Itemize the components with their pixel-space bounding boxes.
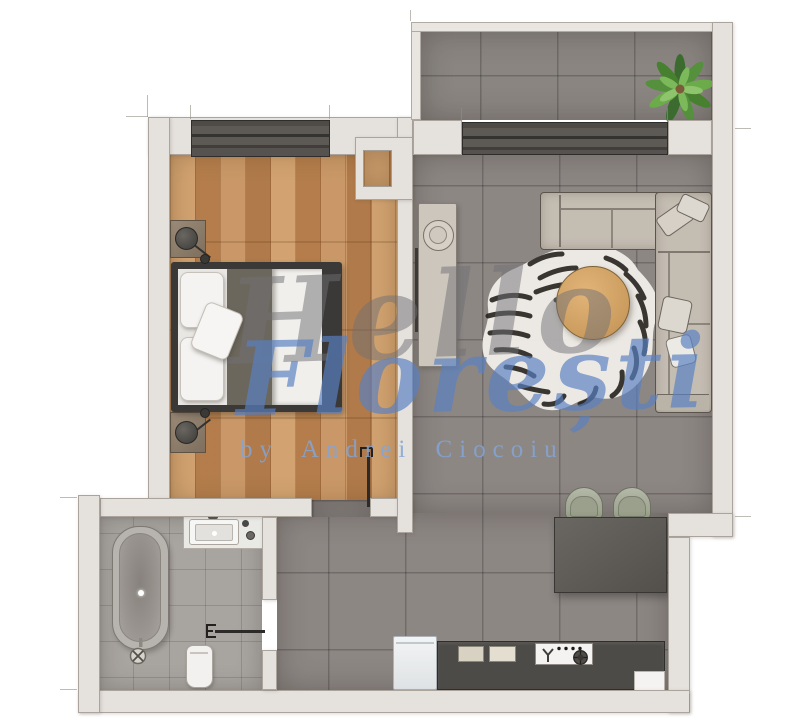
bathroom-door-leaf bbox=[215, 630, 265, 633]
wall-living-top-left bbox=[413, 120, 462, 155]
bedroom-door-handle bbox=[360, 447, 373, 457]
wall-right bbox=[712, 22, 733, 537]
drafting-tick bbox=[410, 10, 411, 21]
chair-seat bbox=[570, 496, 598, 517]
cabinet-circle bbox=[423, 220, 454, 251]
drafting-tick bbox=[689, 694, 690, 712]
chair-seat bbox=[618, 496, 646, 517]
bedroom-doorway-threshold bbox=[312, 500, 370, 517]
dining-chair bbox=[565, 487, 603, 519]
toilet-seat-line bbox=[190, 652, 208, 654]
drafting-tick bbox=[126, 116, 148, 117]
sofa-seam bbox=[559, 195, 561, 247]
drafting-tick bbox=[60, 689, 77, 690]
bathroom-door-handle bbox=[206, 624, 216, 638]
toiletry-item bbox=[246, 531, 255, 540]
cabinet-circle-inner bbox=[429, 226, 447, 244]
drafting-tick bbox=[461, 108, 462, 121]
vanity-counter bbox=[183, 514, 263, 549]
drafting-tick bbox=[60, 497, 77, 498]
floor-plan: Hello Florești by Andrei Ciocoiu bbox=[0, 0, 804, 720]
bathtub-drain bbox=[138, 590, 144, 596]
wall-living-top-right bbox=[668, 120, 712, 155]
vanity-basin-inner bbox=[195, 524, 233, 541]
drafting-tick bbox=[147, 95, 148, 117]
sink-basin bbox=[458, 646, 484, 662]
fridge bbox=[393, 636, 437, 690]
sofa-seam bbox=[611, 210, 613, 248]
double-bed bbox=[171, 262, 342, 412]
sofa-seam bbox=[658, 251, 710, 253]
sink-basin bbox=[489, 646, 516, 662]
wall-bathroom-right-upper bbox=[262, 517, 277, 600]
bathroom-door-handle-bar bbox=[208, 630, 213, 633]
wardrobe-niche bbox=[363, 150, 392, 187]
wall-bathroom-right-lower bbox=[262, 650, 277, 690]
balcony-rail-top bbox=[411, 22, 733, 32]
wall-right-lower bbox=[668, 537, 690, 713]
drafting-tick bbox=[190, 105, 191, 119]
drafting-tick bbox=[329, 105, 330, 119]
lamp-bulb bbox=[200, 254, 210, 264]
sofa-armrest bbox=[657, 394, 709, 410]
wall-left-lower bbox=[78, 495, 100, 713]
bed-duvet bbox=[272, 269, 322, 405]
bedroom-window bbox=[191, 120, 330, 157]
balcony-plant bbox=[645, 52, 715, 124]
tub-faucet bbox=[126, 638, 150, 666]
bathtub bbox=[112, 526, 169, 650]
cooktop-glyphs bbox=[536, 644, 594, 666]
wall-left-upper bbox=[148, 117, 170, 512]
wall-bottom bbox=[78, 690, 690, 713]
tall-cabinet bbox=[418, 203, 457, 367]
lamp-bulb bbox=[200, 408, 210, 418]
cabinet-handle bbox=[415, 248, 418, 332]
wall-bedroom-bottom-left bbox=[100, 498, 312, 517]
cooktop bbox=[535, 643, 593, 665]
toilet bbox=[186, 645, 213, 688]
drafting-tick bbox=[667, 108, 668, 121]
table-lamp bbox=[175, 421, 198, 444]
balcony-rail-left bbox=[411, 22, 421, 120]
drafting-tick bbox=[735, 128, 751, 129]
bathtub-basin bbox=[119, 533, 161, 642]
bedroom-door-leaf bbox=[367, 452, 370, 507]
dining-table bbox=[554, 517, 667, 593]
table-lamp bbox=[175, 227, 198, 250]
balcony-sliding-door bbox=[462, 122, 668, 155]
vanity-drain bbox=[212, 531, 217, 536]
vanity-basin bbox=[189, 519, 239, 545]
drafting-tick bbox=[735, 516, 751, 517]
dining-chair bbox=[613, 487, 651, 519]
round-coffee-table bbox=[556, 266, 630, 340]
counter-mat bbox=[634, 671, 665, 692]
fridge-lid-line bbox=[396, 642, 434, 644]
wall-step bbox=[668, 513, 733, 537]
toiletry-item bbox=[242, 520, 249, 527]
